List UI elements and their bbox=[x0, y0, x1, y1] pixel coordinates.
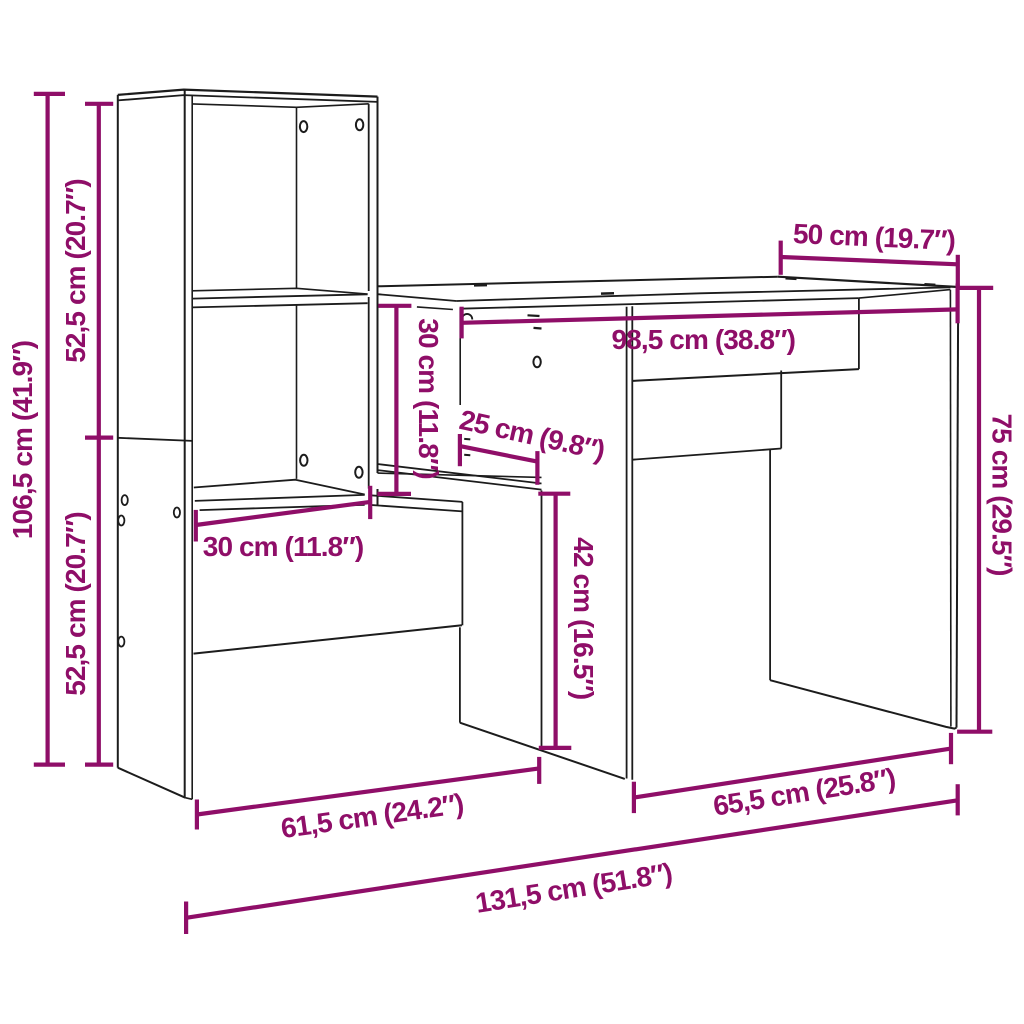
svg-text:75 cm (29.5″): 75 cm (29.5″) bbox=[987, 413, 1018, 575]
svg-text:106,5 cm (41.9″): 106,5 cm (41.9″) bbox=[7, 341, 38, 539]
svg-text:52,5 cm (20.7″): 52,5 cm (20.7″) bbox=[60, 179, 91, 363]
svg-text:98,5 cm (38.8″): 98,5 cm (38.8″) bbox=[612, 324, 796, 355]
svg-text:30 cm (11.8″): 30 cm (11.8″) bbox=[413, 318, 444, 478]
svg-text:52,5 cm (20.7″): 52,5 cm (20.7″) bbox=[60, 512, 91, 696]
svg-text:30 cm (11.8″): 30 cm (11.8″) bbox=[203, 531, 363, 562]
svg-text:42 cm (16.5″): 42 cm (16.5″) bbox=[568, 537, 599, 699]
